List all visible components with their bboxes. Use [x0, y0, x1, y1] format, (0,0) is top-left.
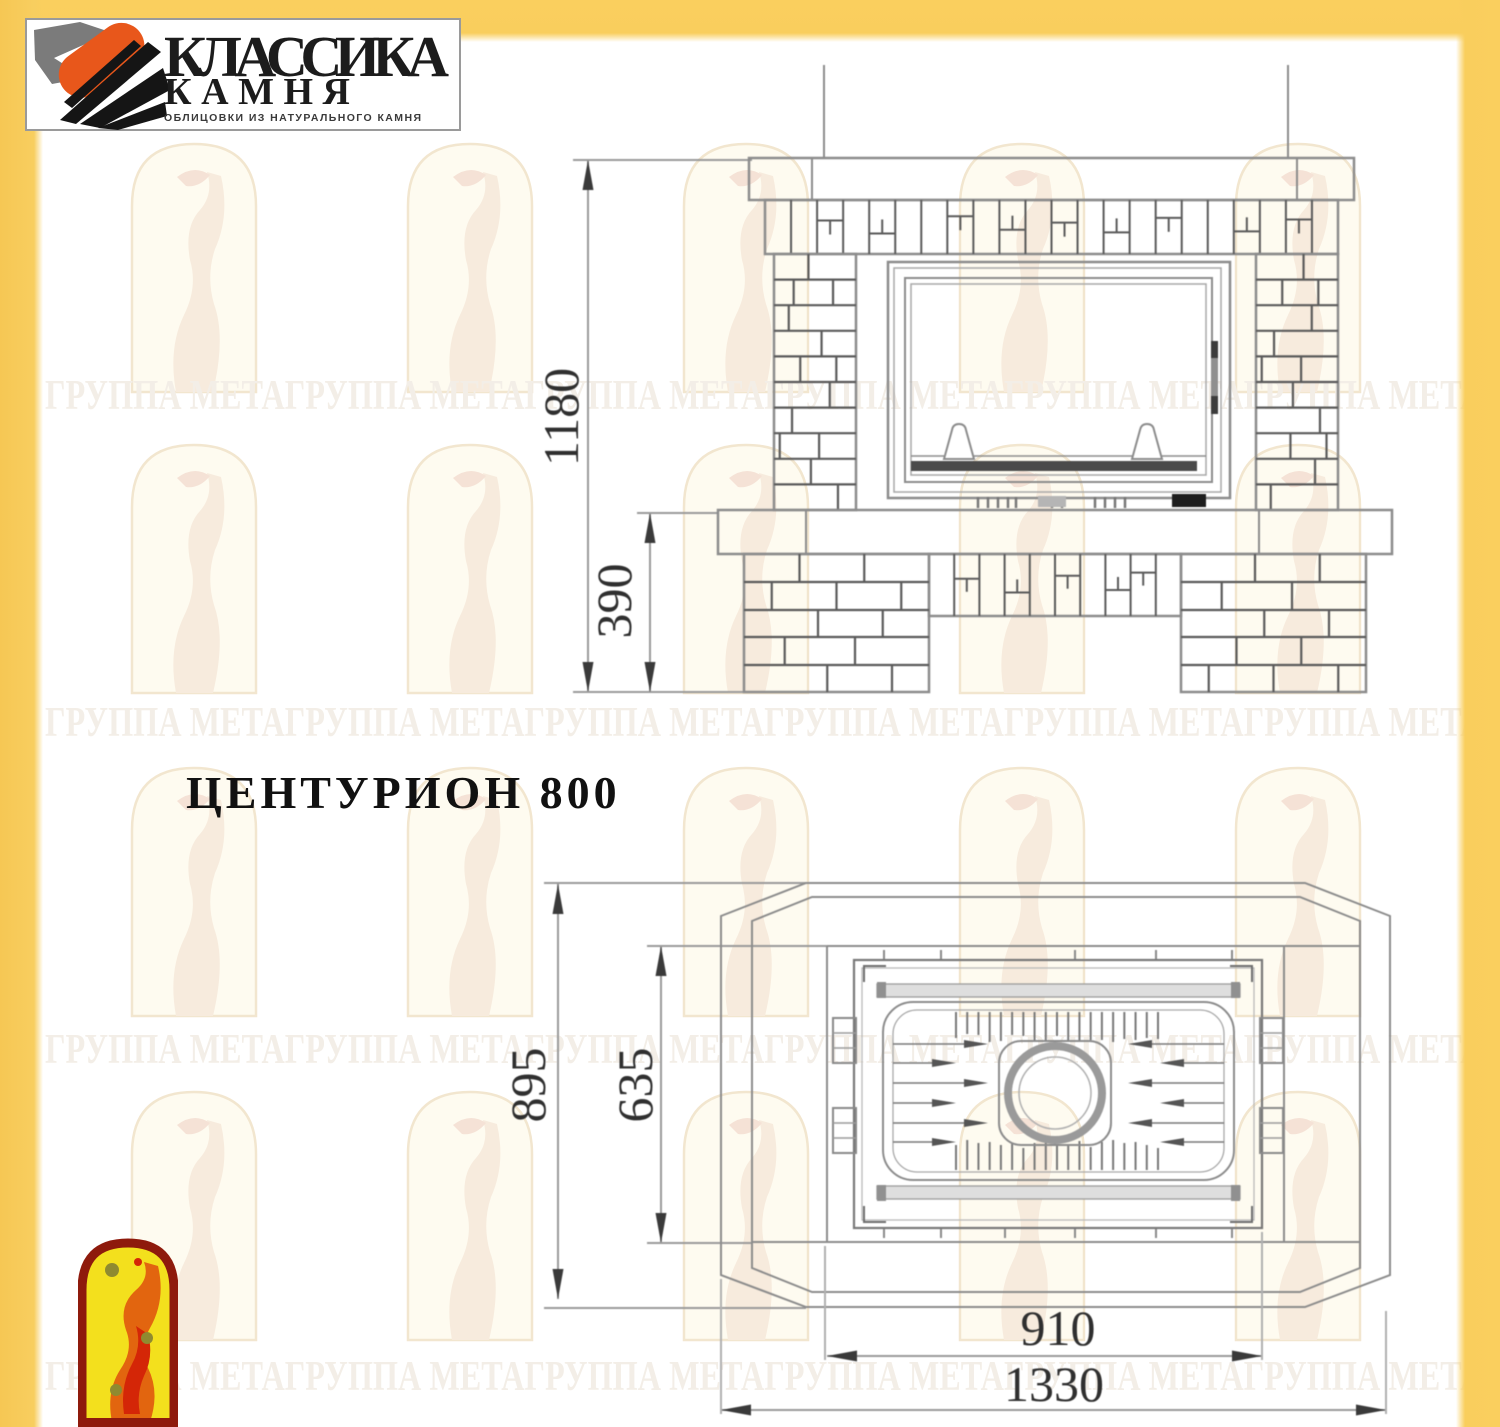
svg-text:1180: 1180: [533, 368, 589, 466]
svg-text:895: 895: [500, 1048, 556, 1123]
svg-text:635: 635: [607, 1048, 663, 1123]
svg-text:910: 910: [1021, 1300, 1096, 1356]
svg-text:1330: 1330: [1004, 1356, 1104, 1412]
svg-text:ОБЛИЦОВКИ ИЗ НАТУРАЛЬНОГО КАМН: ОБЛИЦОВКИ ИЗ НАТУРАЛЬНОГО КАМНЯ: [164, 112, 421, 124]
svg-text:390: 390: [586, 564, 642, 639]
